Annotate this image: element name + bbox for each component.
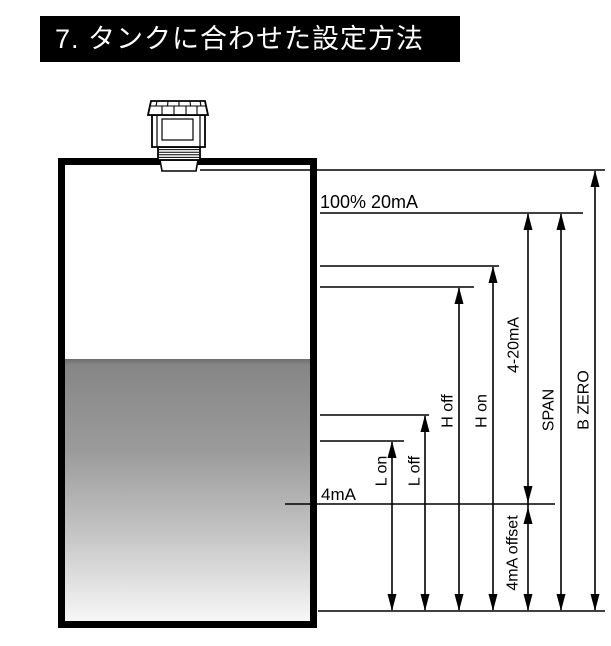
measurement-arrows [392,171,595,610]
current-range-label: 4-20mA [506,317,523,373]
h-on-label: H on [474,394,491,428]
l-off-label: L off [407,455,424,486]
diagram-layer: L on L off H off H on 4-20mA SPAN B ZERO… [0,0,611,646]
sensor-window [162,119,193,140]
full-level-label: 100% 20mA [320,192,418,213]
offset-label: 4mA offset [505,515,522,591]
measurement-labels: L on L off H off H on 4-20mA SPAN B ZERO… [374,317,593,591]
span-label: SPAN [541,389,558,431]
sensor-threads [158,147,200,160]
level-sensor-icon [148,101,208,171]
sensor-nozzle [160,160,198,171]
empty-level-label: 4mA [321,485,356,505]
l-on-label: L on [374,456,391,487]
h-off-label: H off [440,394,457,428]
b-zero-label: B ZERO [576,370,593,430]
